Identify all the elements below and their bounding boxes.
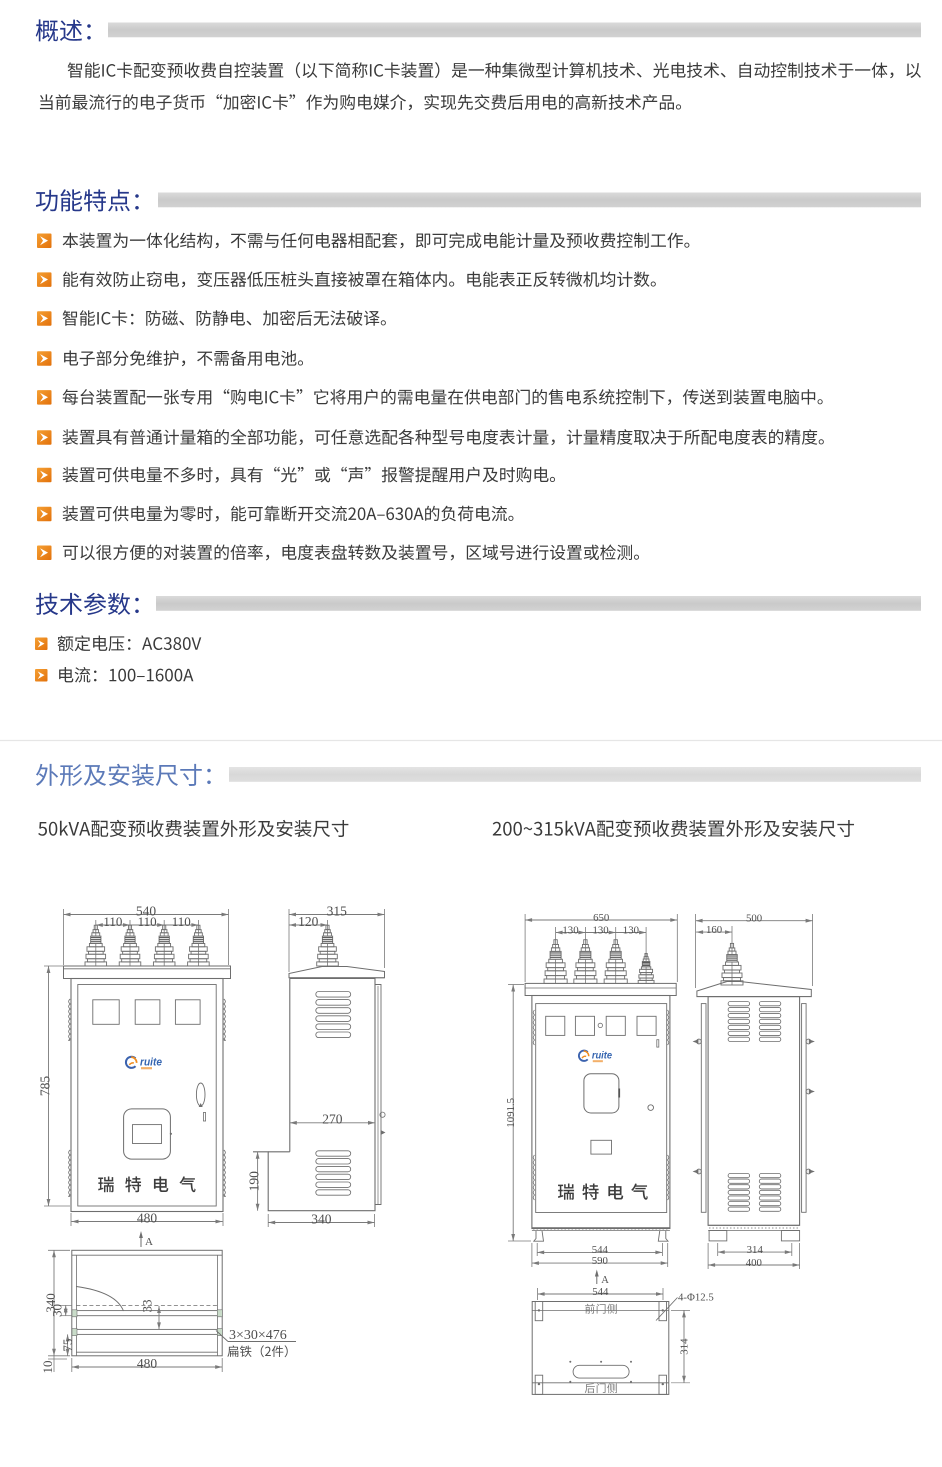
svg-text:130: 130 [592,924,608,936]
svg-text:33: 33 [140,1300,155,1313]
svg-text:400: 400 [746,1257,762,1269]
svg-text:1091.5: 1091.5 [505,1098,517,1128]
svg-text:500: 500 [746,913,762,925]
svg-text:110: 110 [103,914,122,929]
svg-text:ruite: ruite [140,1056,162,1068]
svg-text:10: 10 [40,1361,55,1374]
svg-text:4-Φ12.5: 4-Φ12.5 [678,1292,714,1304]
svg-text:160: 160 [706,924,722,936]
svg-text:544: 544 [592,1286,609,1298]
svg-text:480: 480 [137,1210,158,1225]
svg-text:314: 314 [679,1338,691,1355]
svg-text:A: A [145,1236,153,1248]
svg-text:785: 785 [37,1076,52,1097]
svg-text:3×30×476: 3×30×476 [229,1328,287,1343]
svg-text:ruite: ruite [592,1051,613,1062]
svg-text:270: 270 [322,1112,343,1127]
svg-text:590: 590 [592,1255,608,1267]
svg-text:110: 110 [138,914,157,929]
svg-text:30: 30 [50,1304,65,1317]
svg-text:110: 110 [172,914,191,929]
svg-text:130: 130 [623,924,639,936]
svg-text:650: 650 [593,912,609,924]
svg-text:340: 340 [311,1211,332,1226]
svg-text:314: 314 [747,1244,764,1256]
svg-text:190: 190 [246,1171,261,1192]
svg-text:315: 315 [327,903,348,918]
svg-text:130: 130 [562,924,578,936]
svg-text:120: 120 [298,914,319,929]
svg-text:480: 480 [137,1356,158,1371]
svg-text:75: 75 [60,1339,75,1352]
svg-text:A: A [601,1275,609,1286]
